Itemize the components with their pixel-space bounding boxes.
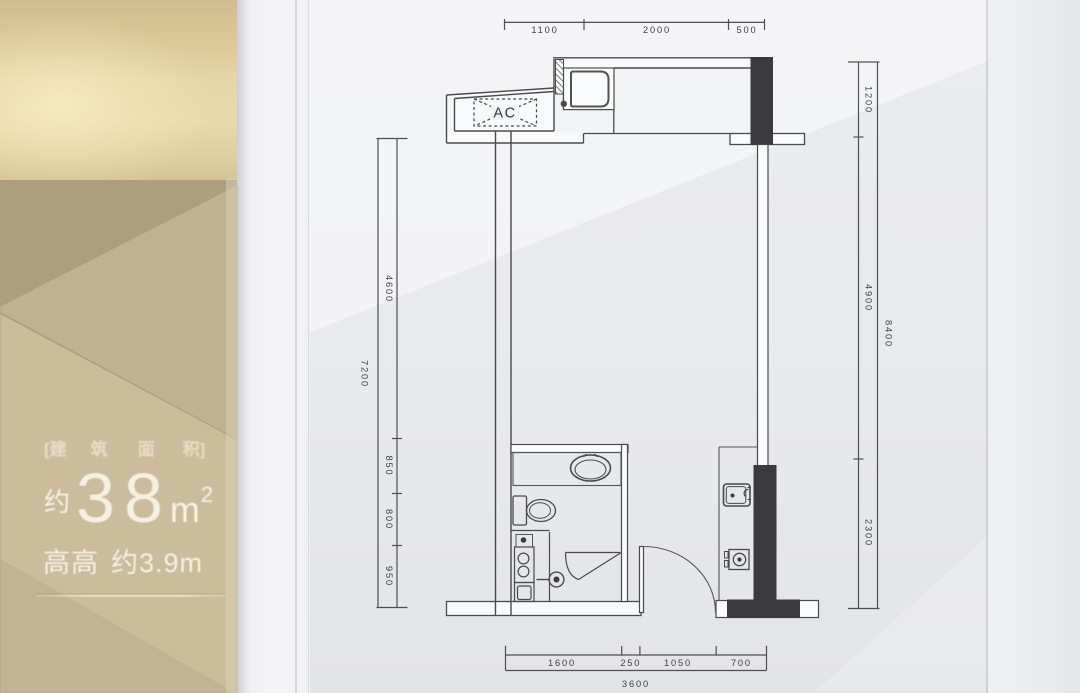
svg-text:500: 500: [737, 25, 758, 35]
svg-text:1600: 1600: [548, 658, 576, 668]
svg-text:7200: 7200: [360, 360, 370, 388]
svg-text:250: 250: [620, 658, 641, 668]
svg-text:2000: 2000: [643, 25, 671, 35]
svg-text:8400: 8400: [884, 320, 894, 348]
svg-text:1050: 1050: [664, 658, 692, 668]
svg-text:700: 700: [731, 658, 752, 668]
svg-text:2300: 2300: [864, 519, 874, 547]
svg-text:850: 850: [384, 456, 394, 477]
svg-text:AC: AC: [493, 106, 516, 122]
svg-text:800: 800: [384, 509, 394, 530]
svg-text:950: 950: [384, 566, 394, 587]
svg-text:1100: 1100: [531, 25, 558, 35]
svg-text:3600: 3600: [622, 679, 650, 689]
svg-text:4600: 4600: [384, 275, 394, 303]
svg-text:1200: 1200: [864, 86, 874, 114]
svg-text:4900: 4900: [864, 284, 874, 312]
